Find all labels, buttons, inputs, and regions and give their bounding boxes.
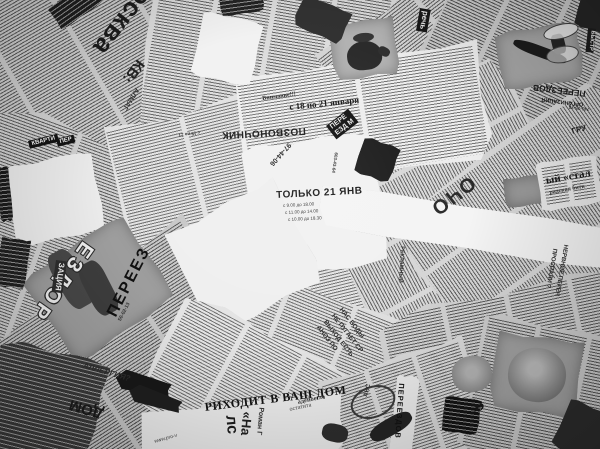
na-letters: «На [238, 411, 254, 436]
reklamny-vertical: РЕКЛАМНЫЙ [396, 246, 404, 283]
newspaper-collage-photo: оскваКВ:АЛМАГКВАРТИПЕРВнимание!!!с 18 по… [0, 0, 600, 449]
collage-art-layer: оскваКВ:АЛМАГКВАРТИПЕРВнимание!!!с 18 по… [0, 0, 600, 449]
